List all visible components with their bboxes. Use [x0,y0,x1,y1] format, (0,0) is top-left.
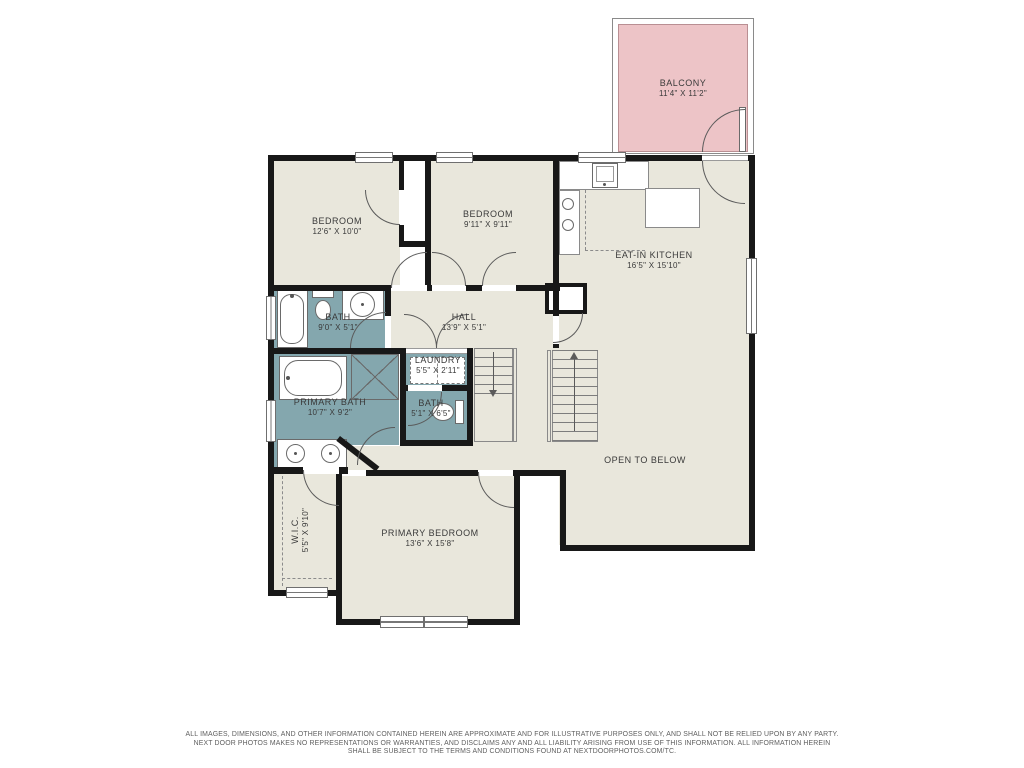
room-dims: 5'5" X 9'10" [301,493,310,567]
wall-left [268,155,274,596]
tub-faucet [290,294,294,298]
room-dims: 10'7" X 9'2" [270,408,390,417]
room-name: BATH [389,398,473,408]
room-dims: 9'11" X 9'11" [428,220,548,229]
room-dims: 12'6" X 10'0" [277,227,397,236]
window-bedroom1 [355,152,393,163]
room-label-primary-bath: PRIMARY BATH 10'7" X 9'2" [270,397,390,417]
wic-shelf-bottom [282,578,332,579]
kitchen-sink-faucet [603,183,606,186]
disclaimer-line-3: SHALL BE SUBJECT TO THE TERMS AND CONDIT… [162,748,862,757]
room-dims: 5'1" X 6'5" [389,409,473,418]
disclaimer-line-1: ALL IMAGES, DIMENSIONS, AND OTHER INFORM… [162,731,862,740]
bath1-drain [361,303,364,306]
primary-tub-basin [284,360,342,396]
room-label-hall: HALL 13'9" X 5'1" [404,312,524,332]
room-name: PRIMARY BATH [270,397,390,407]
wall-bath2-south [400,440,473,446]
primary-tub-faucet [286,376,290,380]
sink-drain-left [294,452,297,455]
room-name: BEDROOM [277,216,397,226]
room-dims: 13'9" X 5'1" [404,323,524,332]
room-name: W.I.C. [290,493,300,567]
window-primary-bedroom-1 [380,616,424,628]
window-bath1 [266,296,276,340]
wall-primary-bedroom-north-a [366,470,478,476]
room-label-laundry: LAUNDRY 5'5" X 2'11" [386,355,490,375]
wall-primary-bedroom-east [514,470,520,625]
wic-shelf-left [282,476,283,586]
wall-top [268,155,755,161]
stairs-down-arrow [489,390,497,397]
wall-open-below-bottom [560,545,755,551]
room-name: HALL [404,312,524,322]
room-name: LAUNDRY [386,355,490,365]
room-dims: 9'0" X 5'1" [288,323,388,332]
room-label-bedroom2: BEDROOM 9'11" X 9'11" [428,209,548,229]
room-name: EAT-IN KITCHEN [584,250,724,260]
window-wic [286,587,328,598]
stairs-up-arrow-line [574,359,575,431]
stove-burner-1 [562,198,574,210]
room-name: BATH [288,312,388,322]
floor-plan: BALCONY 11'4" X 11'2" BEDROOM 12'6" X 10… [0,0,1024,768]
room-label-bath1: BATH 9'0" X 5'1" [288,312,388,332]
window-primary-bedroom-2 [424,616,468,628]
room-label-primary-bedroom: PRIMARY BEDROOM 13'6" X 15'8" [350,528,510,548]
disclaimer-line-2: NEXT DOOR PHOTOS MAKES NO REPRESENTATION… [162,740,862,749]
room-label-bath2: BATH 5'1" X 6'5" [389,398,473,418]
kitchen-sink-basin [596,166,614,182]
room-label-bedroom1: BEDROOM 12'6" X 10'0" [277,216,397,236]
stove-burner-2 [562,219,574,231]
kitchen-island [645,188,700,228]
wall-right [749,155,755,551]
room-label-wic: W.I.C. 5'5" X 9'10" [290,493,316,567]
room-dims: 5'5" X 2'11" [386,366,490,375]
wall-bedroom2-east [553,161,559,285]
opening-bath2 [408,385,442,391]
room-label-open-below: OPEN TO BELOW [575,455,715,465]
window-kitchen-right [746,258,757,334]
stairs-up-treads [552,350,598,442]
bedroom1-closet-floor [404,161,425,241]
stairs-up-arrow [570,352,578,359]
window-bedroom2 [436,152,473,163]
wall-primary-bedroom-north-b [513,470,566,476]
window-kitchen-top [578,152,626,163]
room-name: PRIMARY BEDROOM [350,528,510,538]
room-dims: 11'4" X 11'2" [613,89,753,98]
stairs-down-arrow-line [493,352,494,390]
room-dims: 13'6" X 15'8" [350,539,510,548]
room-name: BEDROOM [428,209,548,219]
room-label-kitchen: EAT-IN KITCHEN 16'5" X 15'10" [584,250,724,270]
upper-cabinet-line-v [585,190,586,250]
room-name: BALCONY [613,78,753,88]
disclaimer: ALL IMAGES, DIMENSIONS, AND OTHER INFORM… [162,731,862,757]
sink-drain-right [329,452,332,455]
room-dims: 16'5" X 15'10" [584,261,724,270]
room-label-balcony: BALCONY 11'4" X 11'2" [613,78,753,98]
stair-railing-left [513,348,517,442]
opening-laundry [406,348,467,354]
wall-open-below-left [560,470,566,551]
room-name: OPEN TO BELOW [575,455,715,465]
stair-railing-right [547,350,551,442]
